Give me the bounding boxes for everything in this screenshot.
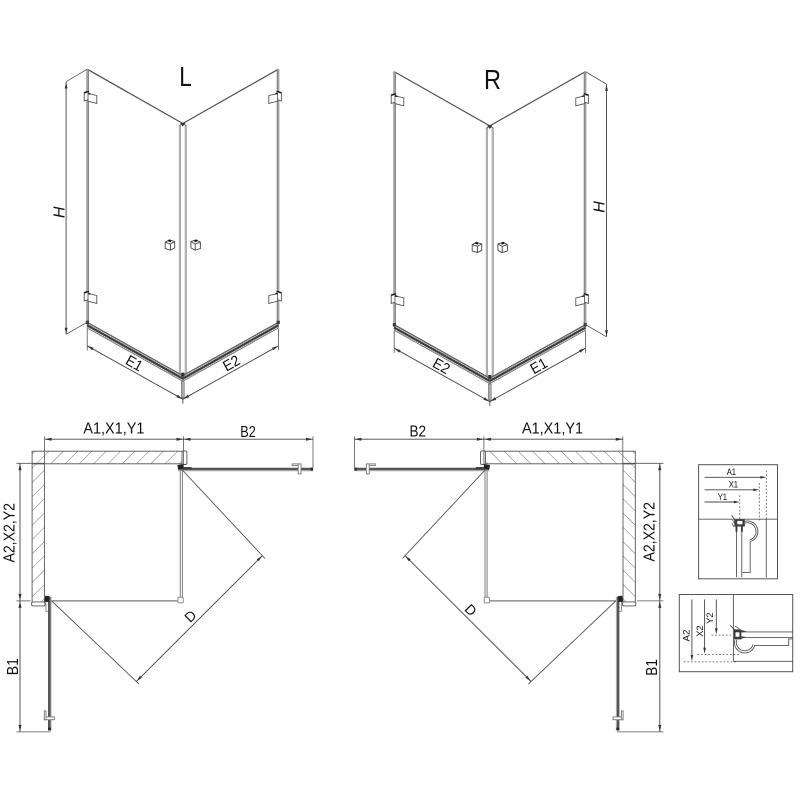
svg-text:A2,X2,Y2: A2,X2,Y2 bbox=[2, 503, 19, 563]
svg-text:A2: A2 bbox=[681, 630, 691, 642]
svg-text:Y1: Y1 bbox=[718, 492, 727, 502]
svg-text:H: H bbox=[51, 206, 68, 218]
svg-text:B1: B1 bbox=[5, 658, 22, 675]
svg-text:Y2: Y2 bbox=[705, 612, 715, 623]
svg-text:B2: B2 bbox=[240, 424, 256, 441]
svg-text:A1,X1,Y1: A1,X1,Y1 bbox=[83, 421, 144, 438]
svg-text:A1: A1 bbox=[727, 467, 736, 477]
svg-text:X1: X1 bbox=[729, 479, 738, 489]
svg-text:R: R bbox=[484, 64, 501, 95]
svg-text:X2: X2 bbox=[695, 625, 705, 636]
svg-text:A2,X2,Y2: A2,X2,Y2 bbox=[641, 502, 658, 562]
svg-text:H: H bbox=[591, 201, 608, 213]
svg-text:B1: B1 bbox=[644, 659, 661, 676]
svg-text:L: L bbox=[179, 61, 192, 92]
svg-text:A1,X1,Y1: A1,X1,Y1 bbox=[522, 421, 583, 438]
svg-text:B2: B2 bbox=[410, 423, 427, 440]
